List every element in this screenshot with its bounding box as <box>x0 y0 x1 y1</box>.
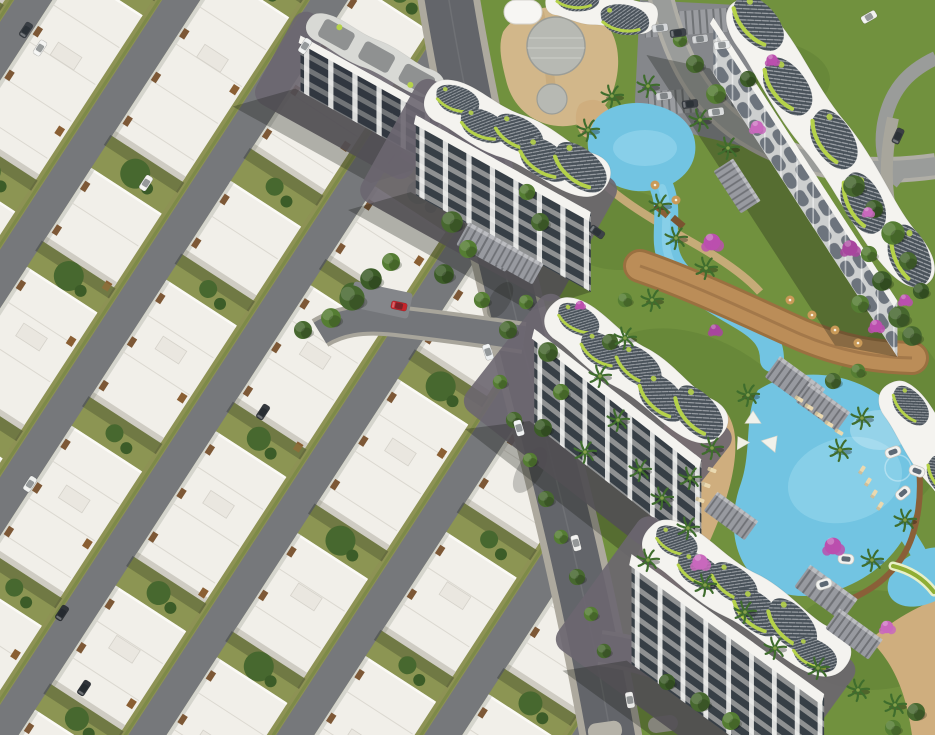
pavilion <box>504 0 542 24</box>
umbrella <box>831 326 840 335</box>
water-highlight <box>613 130 677 166</box>
circular-deck-large <box>527 17 585 75</box>
umbrella <box>854 339 863 348</box>
aerial-masterplan-render <box>0 0 935 735</box>
umbrella <box>672 196 681 205</box>
umbrella <box>786 296 795 305</box>
umbrella <box>808 311 817 320</box>
circular-deck-small <box>537 84 567 114</box>
umbrella <box>651 181 660 190</box>
render-canvas <box>0 0 935 735</box>
